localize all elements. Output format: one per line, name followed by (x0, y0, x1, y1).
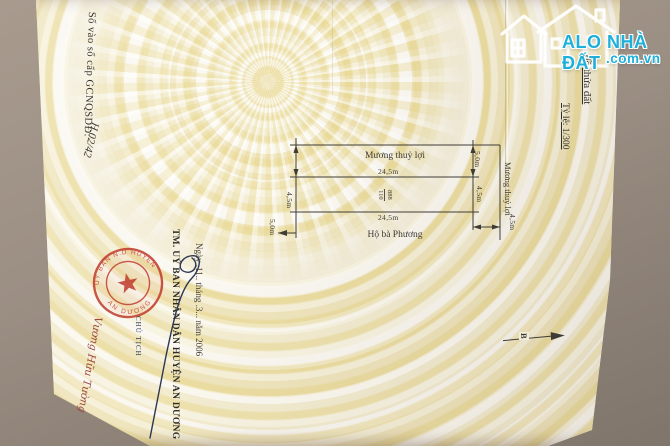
fold-crease-secondary (332, 0, 333, 95)
dim-bottom-left: 5,0m (268, 219, 277, 235)
dim-top: 24,5m (378, 167, 398, 176)
dim-right-top: 5,0m (473, 151, 482, 167)
photo-background: Số vào sổ cấp GCNQSDĐ: H.02/42 đồ thửa đ… (0, 0, 670, 446)
canal-right-label: Mương thuỷ lợi (503, 162, 513, 216)
north-label: B (519, 332, 529, 340)
dim-bottom: 24,5m (378, 213, 398, 222)
north-arrow (494, 326, 573, 352)
signature-stroke (140, 248, 220, 446)
dim-left: 4,5m (285, 192, 294, 208)
parcel-area: 110 (376, 190, 384, 200)
parcel-number: 888 (384, 189, 393, 201)
dim-right-mid: 4,5m (475, 186, 484, 202)
parcel-fraction: 888 110 (376, 189, 393, 201)
neighbor-label: Hộ bà Phương (345, 230, 445, 240)
watermark-domain: .com.vn (606, 51, 661, 66)
canal-top-label: Mương thuỷ lợi (345, 151, 445, 161)
dim-right-bottom: 4,5m (508, 214, 517, 230)
